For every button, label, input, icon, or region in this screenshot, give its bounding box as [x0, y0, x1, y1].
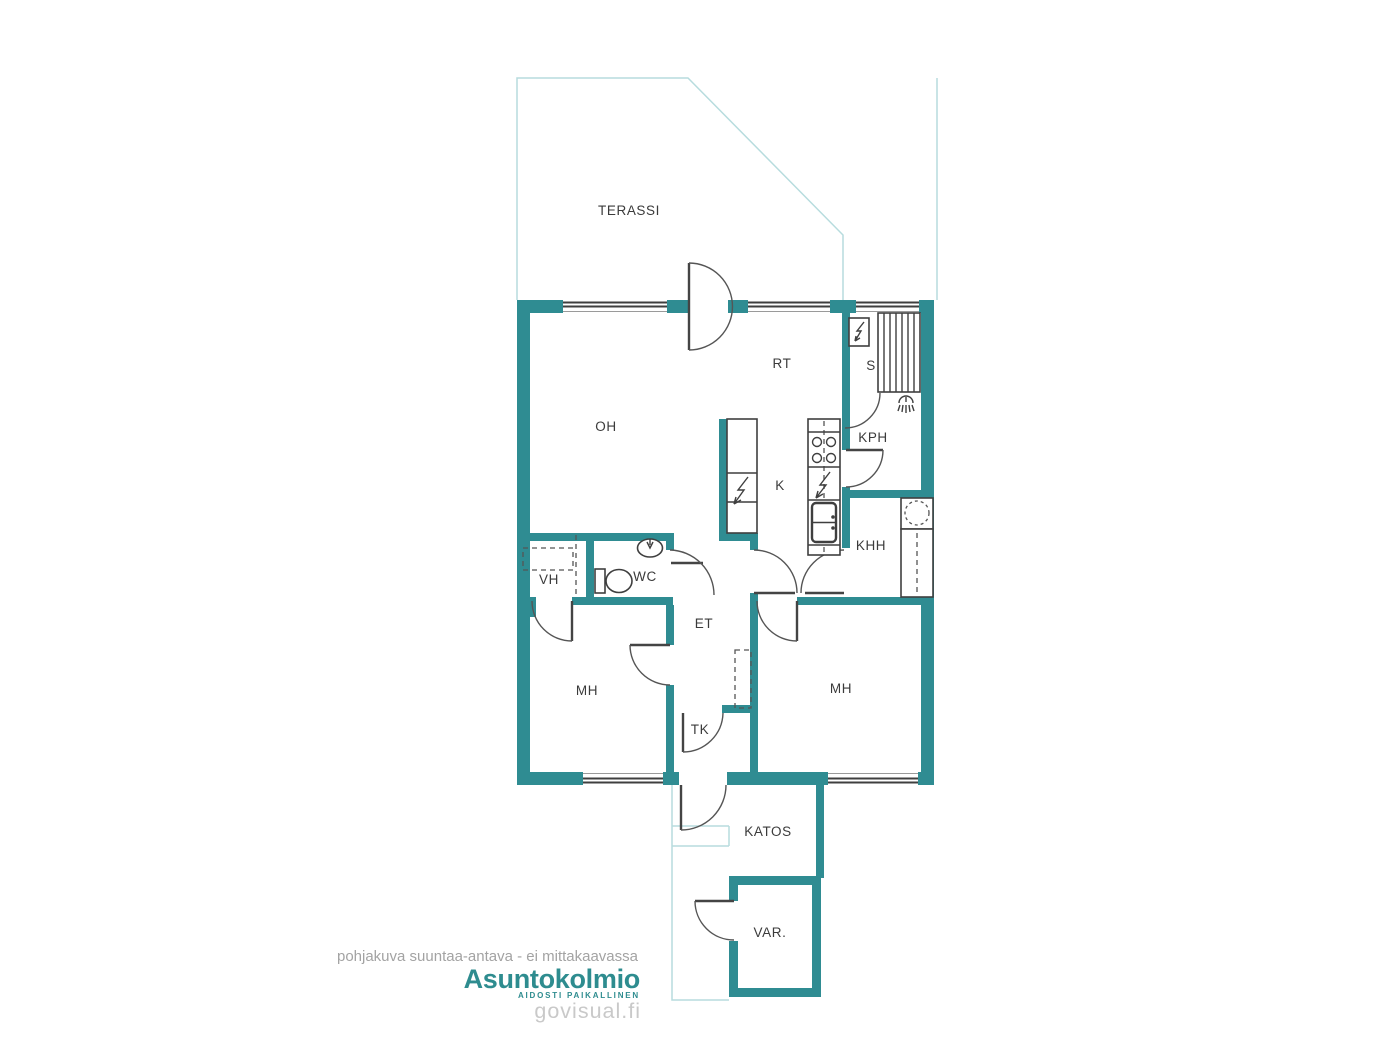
door-wc [670, 550, 714, 595]
wall-kph-khh-divider [842, 490, 921, 498]
footer: pohjakuva suuntaa-antava - ei mittakaava… [337, 948, 641, 1023]
khh-fixtures [901, 498, 933, 597]
wc-sink-icon [638, 539, 663, 557]
wall-left [517, 300, 530, 785]
wall-katos-east [816, 785, 824, 878]
floor-plan-svg: TERASSI RT S OH KPH K KHH VH WC ET MH MH… [0, 0, 1400, 1048]
wall-top-seg4 [830, 300, 856, 313]
wall-top-seg5 [919, 300, 934, 313]
room-label-oh: OH [595, 419, 616, 434]
terrace-boundary [517, 78, 843, 300]
room-label-et: ET [695, 616, 713, 631]
window-sauna [856, 300, 919, 313]
toilet-icon [595, 569, 632, 593]
window-mh-left [583, 772, 663, 785]
room-label-khh: KHH [856, 538, 886, 553]
inner-walls [530, 313, 934, 878]
window-rt [748, 300, 830, 313]
door-sauna [845, 393, 880, 428]
sink-icon [812, 503, 836, 542]
room-label-var: VAR. [754, 925, 787, 940]
wall-var-north [729, 876, 821, 885]
watermark-text: govisual.fi [534, 999, 641, 1023]
brand-logo-text: Asuntokolmio [464, 964, 640, 994]
room-label-kph: KPH [858, 430, 888, 445]
room-label-mh-left: MH [576, 683, 598, 698]
wall-bottom-seg1 [517, 772, 583, 785]
window-oh [563, 300, 667, 313]
wall-top-seg1 [517, 300, 563, 313]
wc-fixtures [595, 539, 663, 593]
room-label-tk: TK [691, 722, 709, 737]
wall-tk-north [722, 705, 751, 713]
kitchen-left-counter [727, 419, 757, 533]
door-front [681, 785, 726, 830]
room-label-rt: RT [773, 356, 792, 371]
wall-kitchen-jog [719, 533, 758, 541]
room-label-s: S [866, 358, 876, 373]
wall-bottom-seg4 [918, 772, 934, 785]
wall-bottom-seg3 [727, 772, 828, 785]
wall-k-door-stub [750, 541, 758, 550]
door-kph [846, 450, 883, 487]
tk-cabinet [735, 650, 751, 708]
door-vh [532, 601, 572, 641]
wall-vh-wc-divider [586, 541, 594, 603]
sauna-heater [849, 318, 869, 346]
wall-var-south [729, 988, 821, 997]
door-khh [801, 550, 844, 593]
shower-icon [898, 396, 914, 413]
door-terrace [689, 263, 732, 350]
wall-var-west-2 [729, 941, 738, 997]
wall-top-seg2 [667, 300, 689, 313]
room-label-wc: WC [633, 569, 657, 584]
wall-top-seg3 [728, 300, 748, 313]
room-label-terassi: TERASSI [598, 203, 660, 218]
wall-wc-right-stub [666, 533, 674, 550]
room-label-mh-right: MH [830, 681, 852, 696]
wall-mhleft-east-1 [666, 605, 674, 645]
wall-mhright-north [797, 597, 934, 605]
door-var [695, 901, 734, 940]
wall-wc-south [572, 597, 673, 605]
disclaimer-text: pohjakuva suuntaa-antava - ei mittakaava… [337, 948, 639, 965]
room-label-k: K [775, 478, 785, 493]
sauna-fixtures [849, 313, 920, 413]
terrace-outline [517, 78, 937, 300]
door-mh-right [757, 601, 797, 641]
room-label-vh: VH [539, 572, 559, 587]
wall-bottom-seg2 [663, 772, 679, 785]
door-k [754, 550, 797, 593]
wall-kitchen-peninsula [719, 419, 727, 541]
floor-plan-page: TERASSI RT S OH KPH K KHH VH WC ET MH MH… [0, 0, 1400, 1048]
wall-var-east [812, 876, 821, 997]
wall-var-west-1 [729, 876, 738, 901]
window-mh-right [828, 772, 918, 785]
room-label-katos: KATOS [744, 824, 792, 839]
wall-mhleft-east-2 [666, 685, 674, 772]
vh-wardrobe [523, 548, 573, 570]
door-mh-left [630, 645, 670, 685]
